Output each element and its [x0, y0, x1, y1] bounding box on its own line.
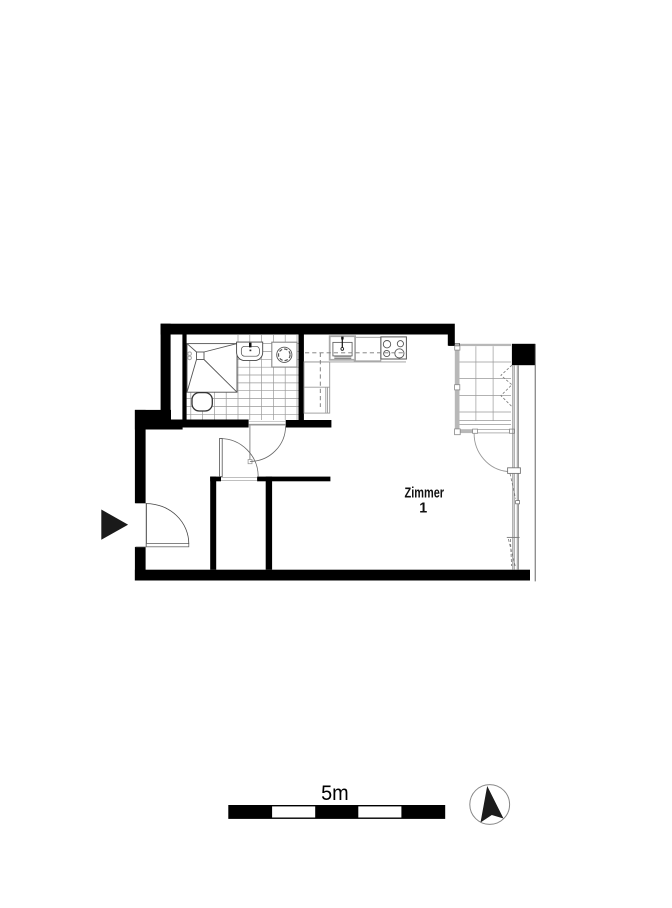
- svg-text:Zimmer: Zimmer: [405, 486, 445, 502]
- svg-text:1: 1: [419, 500, 427, 516]
- svg-text:5m: 5m: [321, 782, 349, 805]
